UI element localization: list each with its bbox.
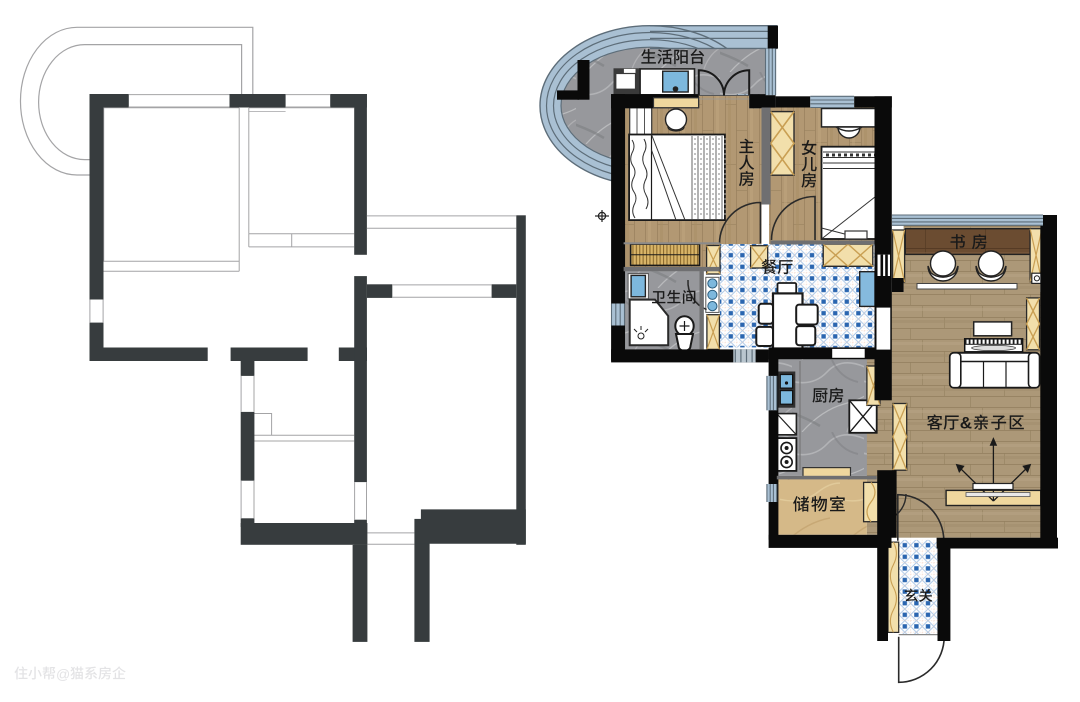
svg-text:@: @ bbox=[56, 666, 70, 682]
svg-text:&: & bbox=[960, 414, 972, 433]
